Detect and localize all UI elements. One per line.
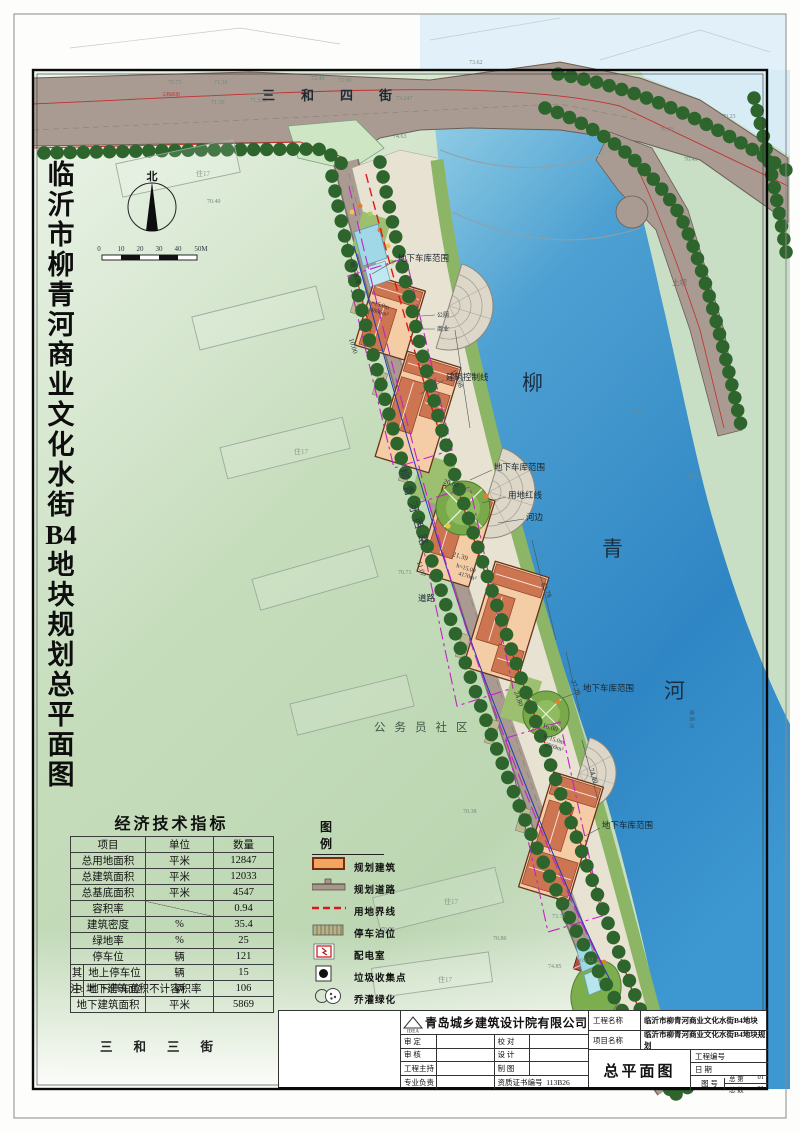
cell-label: 审 核 (401, 1049, 437, 1062)
svg-text:69.12: 69.12 (580, 958, 594, 964)
legend-item: 乔灌绿化 (312, 988, 462, 1009)
redline-label: 用地红线 (508, 490, 543, 500)
riverside-label: 河边 (526, 512, 544, 522)
legend-item: 垃圾收集点 (312, 966, 462, 987)
parking-symbol-icon (312, 922, 348, 943)
project-name: 临沂市柳青河商业文化水街B4地块 (641, 1011, 768, 1030)
svg-text:50M: 50M (194, 245, 208, 253)
ghost-label: 住17 (294, 447, 308, 456)
cell-label: 制 图 (495, 1062, 531, 1075)
river-small: 柳青河 (688, 710, 695, 730)
legend-item: 配电室 (312, 944, 462, 965)
title-block: IDEA 青岛城乡建筑设计院有限公司 审 定校 对 审 核设 计 工程主持制 图… (278, 1010, 767, 1089)
legend-item: 规划道路 (312, 878, 462, 899)
cert-number: 113B26 (546, 1078, 569, 1087)
cell-label: 工程主持 (401, 1062, 437, 1075)
svg-text:70.73: 70.73 (168, 80, 182, 86)
svg-text:70.86: 70.86 (493, 936, 507, 942)
svg-text:67.37: 67.37 (629, 410, 643, 416)
svg-text:20: 20 (137, 245, 145, 253)
project-no-row: 工程编号 (691, 1050, 768, 1063)
north-label: 北 (147, 169, 158, 183)
svg-text:70.49: 70.49 (684, 157, 698, 163)
figure-no-row: 图 号 总 第01 总 数01 (691, 1076, 768, 1090)
svg-text:40: 40 (175, 245, 183, 253)
table-row: 容积率0.94 (71, 901, 274, 917)
building-symbol-icon (312, 856, 348, 877)
svg-text:70.40: 70.40 (207, 199, 221, 205)
drawing-title: 总平面图 (589, 1050, 691, 1090)
svg-text:71.30: 71.30 (211, 100, 225, 106)
svg-text:72.99: 72.99 (338, 78, 352, 84)
garage-label: 地下车库范围 (398, 253, 449, 263)
cell-label: 审 定 (401, 1035, 437, 1048)
road-label: 道路 (418, 593, 436, 603)
table-row: 其地上停车位辆15 (71, 965, 274, 981)
company-name: 青岛城乡建筑设计院有限公司 (425, 1014, 588, 1031)
svg-text:74.63: 74.63 (393, 134, 407, 140)
power-room-symbol-icon (312, 943, 348, 966)
svg-text:70.38: 70.38 (463, 809, 477, 815)
drawing-sheet: 住17 住17 住17 住17 地下车库范围 建筑控制线 地下车库范围 用地红线… (0, 0, 800, 1132)
river-char: 青 (602, 537, 623, 561)
title-block-signature-area (279, 1011, 401, 1087)
garage-label: 地下车库范围 (602, 820, 653, 830)
legend: 图例 规划建筑 规划道路 用地界线 停车泊位 配电室 垃圾收集点 乔灌绿化 (312, 818, 462, 1009)
svg-text:70.23: 70.23 (722, 114, 736, 120)
garage-label: 地下车库范围 (494, 462, 545, 472)
dam-label: 土坝 (672, 277, 687, 287)
legend-item: 规划建筑 (312, 856, 462, 877)
sheet-seq: 01 (758, 1074, 765, 1081)
community-name: 公务员社区 (374, 720, 477, 734)
cert-cell: 资质证书编号 113B26 (495, 1076, 588, 1090)
biz-label: 商业 (437, 325, 449, 333)
company-logo-icon: IDEA (401, 1013, 425, 1033)
wc-label: 公厕 (437, 312, 449, 319)
cell-label: 设 计 (495, 1049, 531, 1062)
table-row: 绿地率%25 (71, 933, 274, 949)
trash-symbol-icon (312, 965, 348, 988)
table-row: 建筑密度%35.4 (71, 917, 274, 933)
legend-item: 用地界线 (312, 900, 462, 921)
cell-label: 校 对 (495, 1035, 531, 1048)
road-bottom-name: 三和三街 (100, 1036, 234, 1055)
svg-text:0: 0 (97, 245, 101, 253)
table-row: 总基底面积平米4547 (71, 885, 274, 901)
road-top-name: 三和四街 (262, 88, 418, 103)
table-row: 地下建筑面积平米5869 (71, 997, 274, 1013)
ghost-label: 住17 (196, 169, 210, 178)
svg-text:73.77: 73.77 (552, 914, 566, 920)
table-row: 停车位辆121 (71, 949, 274, 965)
svg-text:70.70: 70.70 (660, 127, 674, 133)
greening-symbol-icon (312, 987, 348, 1010)
svg-text:30: 30 (156, 245, 164, 253)
svg-text:74.85: 74.85 (548, 964, 562, 970)
legend-title: 图例 (312, 818, 384, 855)
legend-item: 停车泊位 (312, 922, 462, 943)
table-header: 项目 单位 数量 (71, 837, 274, 853)
river-char: 河 (664, 679, 685, 703)
garage-label: 地下车库范围 (583, 683, 634, 693)
item-label: 项目名称 (589, 1031, 641, 1049)
cell-label: 专业负责 (401, 1076, 437, 1090)
sheet-title-vertical: 临沂市柳青河商业文化水街B4地块规划总平面图 (44, 160, 78, 790)
sheet-total: 01 (758, 1085, 765, 1092)
river-char: 柳 (522, 371, 543, 395)
project-label: 工程名称 (589, 1011, 641, 1030)
svg-text:IDEA: IDEA (407, 1029, 419, 1033)
item-name: 临沂市柳青河商业文化水街B4地块规划 (641, 1031, 768, 1049)
indicators-title: 经济技术指标 (70, 810, 273, 834)
road-symbol-icon (312, 878, 348, 899)
table-note: 注: 地下建筑面积不计容积率 (70, 981, 202, 996)
table-row: 总建筑面积平米12033 (71, 869, 274, 885)
svg-text:70.71: 70.71 (398, 570, 412, 576)
svg-text:71.36: 71.36 (214, 80, 228, 86)
svg-text:68.42: 68.42 (688, 474, 702, 480)
road-top-tiny: 三和四街 (162, 91, 180, 98)
svg-text:72.48: 72.48 (311, 76, 325, 82)
table-row: 总用地面积平米12847 (71, 853, 274, 869)
svg-text:10: 10 (118, 245, 126, 253)
boundary-symbol-icon (312, 900, 348, 921)
svg-text:73.62: 73.62 (469, 60, 483, 66)
